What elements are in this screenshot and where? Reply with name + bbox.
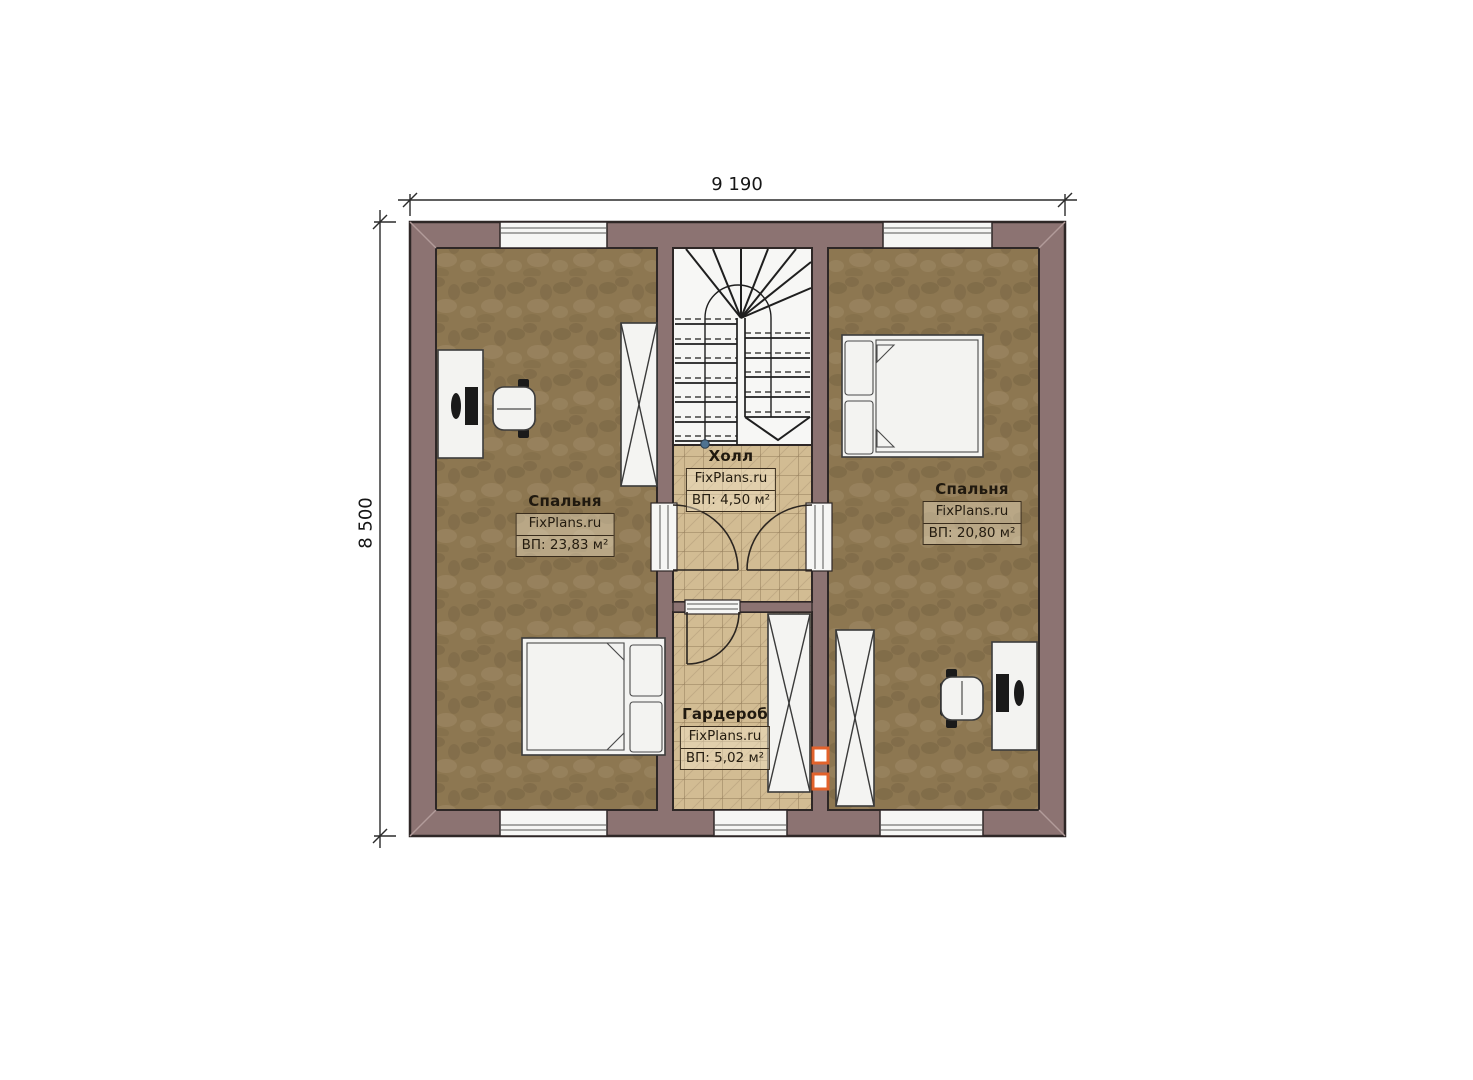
brand-watermark: FixPlans.ru	[681, 727, 769, 748]
pillow	[630, 702, 662, 752]
dimension-line-width	[398, 193, 1077, 216]
pillow	[845, 401, 873, 454]
floor-plan-page: Спальня FixPlans.ru ВП: 23,83 м² Холл Fi…	[0, 0, 1473, 1080]
bed-bedroom-right	[842, 335, 983, 457]
brand-watermark: FixPlans.ru	[687, 469, 775, 490]
room-info-box: FixPlans.ru ВП: 23,83 м²	[516, 513, 615, 557]
desk-bedroom-left	[438, 350, 483, 458]
monitor	[465, 387, 478, 425]
room-label-bedroom-right: Спальня FixPlans.ru ВП: 20,80 м²	[923, 480, 1022, 545]
mattress	[876, 340, 978, 452]
window-bottom-left	[500, 810, 607, 836]
brand-watermark: FixPlans.ru	[517, 514, 614, 535]
room-name: Гардероб	[680, 705, 770, 723]
room-area: ВП: 23,83 м²	[517, 535, 614, 557]
dimension-height-label: 8 500	[356, 497, 377, 549]
window-top-left	[500, 222, 607, 248]
dimension-width-label: 9 190	[711, 174, 763, 195]
closet-bedroom-left	[621, 323, 657, 486]
room-name: Спальня	[923, 480, 1022, 498]
room-name: Спальня	[516, 492, 615, 510]
desk-bedroom-right	[992, 642, 1037, 750]
room-label-wardrobe: Гардероб FixPlans.ru ВП: 5,02 м²	[680, 705, 770, 770]
room-info-box: FixPlans.ru ВП: 4,50 м²	[686, 468, 776, 512]
closet-bedroom-right	[836, 630, 874, 806]
floor-plan-drawing	[0, 0, 1473, 1080]
wall-vent-marker	[813, 748, 828, 763]
chair-bedroom-right	[940, 669, 983, 728]
wall-vent-marker	[813, 774, 828, 789]
room-name: Холл	[686, 447, 776, 465]
room-info-box: FixPlans.ru ВП: 20,80 м²	[923, 501, 1022, 545]
room-label-bedroom-left: Спальня FixPlans.ru ВП: 23,83 м²	[516, 492, 615, 557]
room-info-box: FixPlans.ru ВП: 5,02 м²	[680, 726, 770, 770]
room-area: ВП: 5,02 м²	[681, 748, 769, 770]
window-bottom-middle	[714, 810, 787, 836]
mattress	[527, 643, 624, 750]
monitor	[996, 674, 1009, 712]
window-bottom-right	[880, 810, 983, 836]
window-top-right	[883, 222, 992, 248]
room-area: ВП: 20,80 м²	[924, 523, 1021, 545]
room-area: ВП: 4,50 м²	[687, 490, 775, 512]
room-label-hall: Холл FixPlans.ru ВП: 4,50 м²	[686, 447, 776, 512]
monitor-base	[1014, 680, 1024, 706]
chair-bedroom-left	[493, 379, 535, 438]
bed-bedroom-left	[522, 638, 665, 755]
closet-wardrobe	[768, 614, 810, 792]
pillow	[630, 645, 662, 696]
monitor-base	[451, 393, 461, 419]
pillow	[845, 341, 873, 395]
brand-watermark: FixPlans.ru	[924, 502, 1021, 523]
